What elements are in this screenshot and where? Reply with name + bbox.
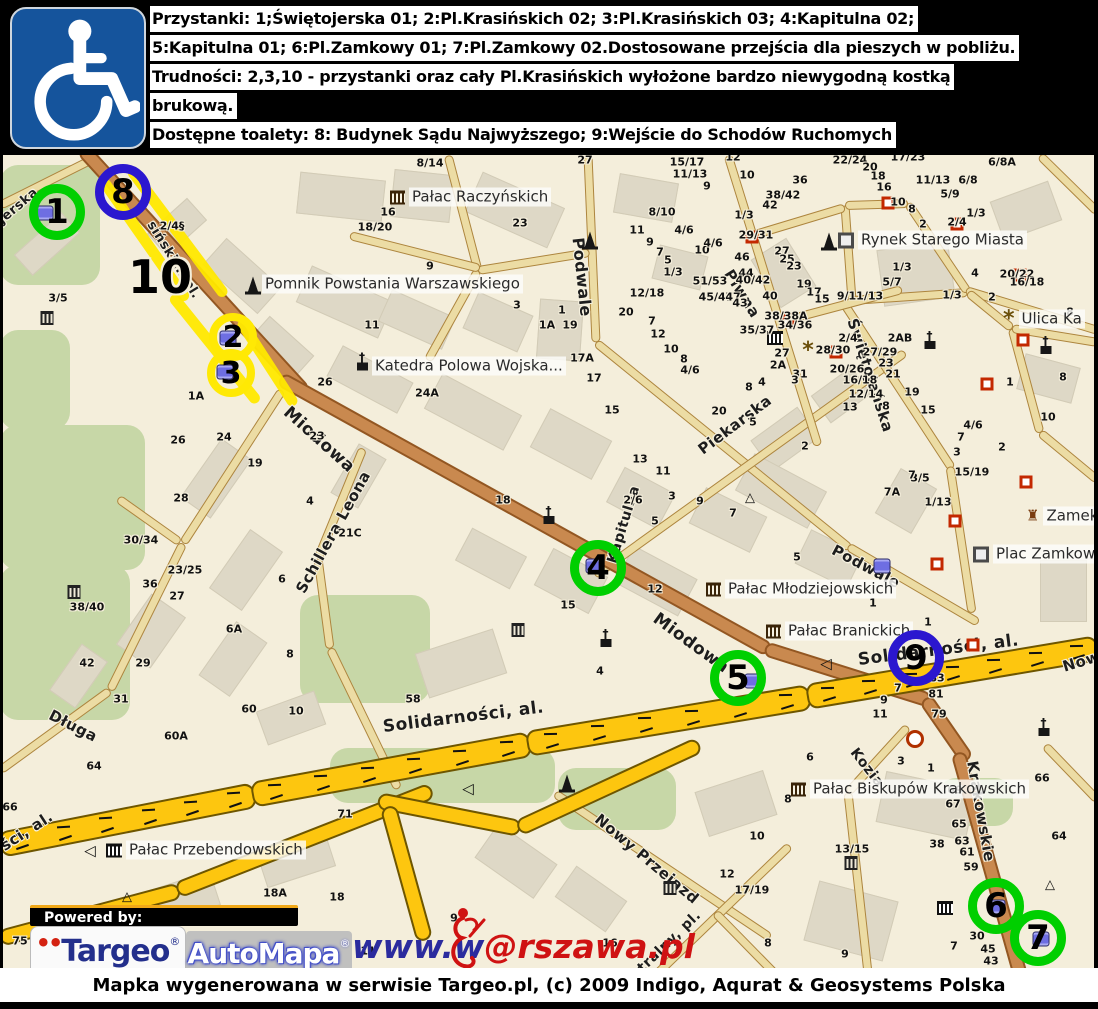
legend-text: Przystanki: 1;Świętojerska 01; 2:Pl.Kras… bbox=[150, 6, 1096, 151]
legend-line-stops-1: Przystanki: 1;Świętojerska 01; 2:Pl.Kras… bbox=[150, 6, 918, 32]
targeo-logo: ••Targeo® bbox=[30, 926, 186, 968]
map-canvas: jerskasińskich pl.PodwaleMiodowaMiodowaP… bbox=[3, 155, 1094, 968]
automapa-logo-text: AutoMapa bbox=[188, 937, 340, 968]
legend-line-difficulties-cont: brukową. bbox=[150, 93, 237, 119]
website-text-red: @rszawa.pl bbox=[484, 927, 695, 966]
wheelchair-icon bbox=[12, 9, 140, 143]
wheelchair-sign bbox=[10, 7, 146, 149]
mermaid-icon bbox=[446, 906, 486, 968]
legend-line-stops-2: 5:Kapitulna 01; 6:Pl.Zamkowy 01; 7:Pl.Za… bbox=[150, 35, 1019, 61]
powered-by-bar: Powered by: bbox=[30, 905, 298, 926]
automapa-registered-mark: ® bbox=[339, 937, 350, 950]
legend-header: Przystanki: 1;Świętojerska 01; 2:Pl.Kras… bbox=[0, 0, 1098, 155]
warszawa-website-logo: www.w@rszawa.pl bbox=[352, 920, 695, 968]
legend-line-difficulties: Trudności: 2,3,10 - przystanki oraz cały… bbox=[150, 64, 954, 90]
legend-line-toilets: Dostępne toalety: 8: Budynek Sądu Najwyż… bbox=[150, 122, 896, 148]
automapa-logo: AutoMapa® bbox=[186, 931, 352, 968]
targeo-quote-mark: •• bbox=[36, 929, 61, 957]
map-caption: Mapka wygenerowana w serwisie Targeo.pl,… bbox=[0, 968, 1098, 1002]
map-page: Przystanki: 1;Świętojerska 01; 2:Pl.Kras… bbox=[0, 0, 1098, 1009]
targeo-registered-mark: ® bbox=[169, 935, 180, 948]
targeo-logo-text: Targeo bbox=[61, 934, 169, 968]
